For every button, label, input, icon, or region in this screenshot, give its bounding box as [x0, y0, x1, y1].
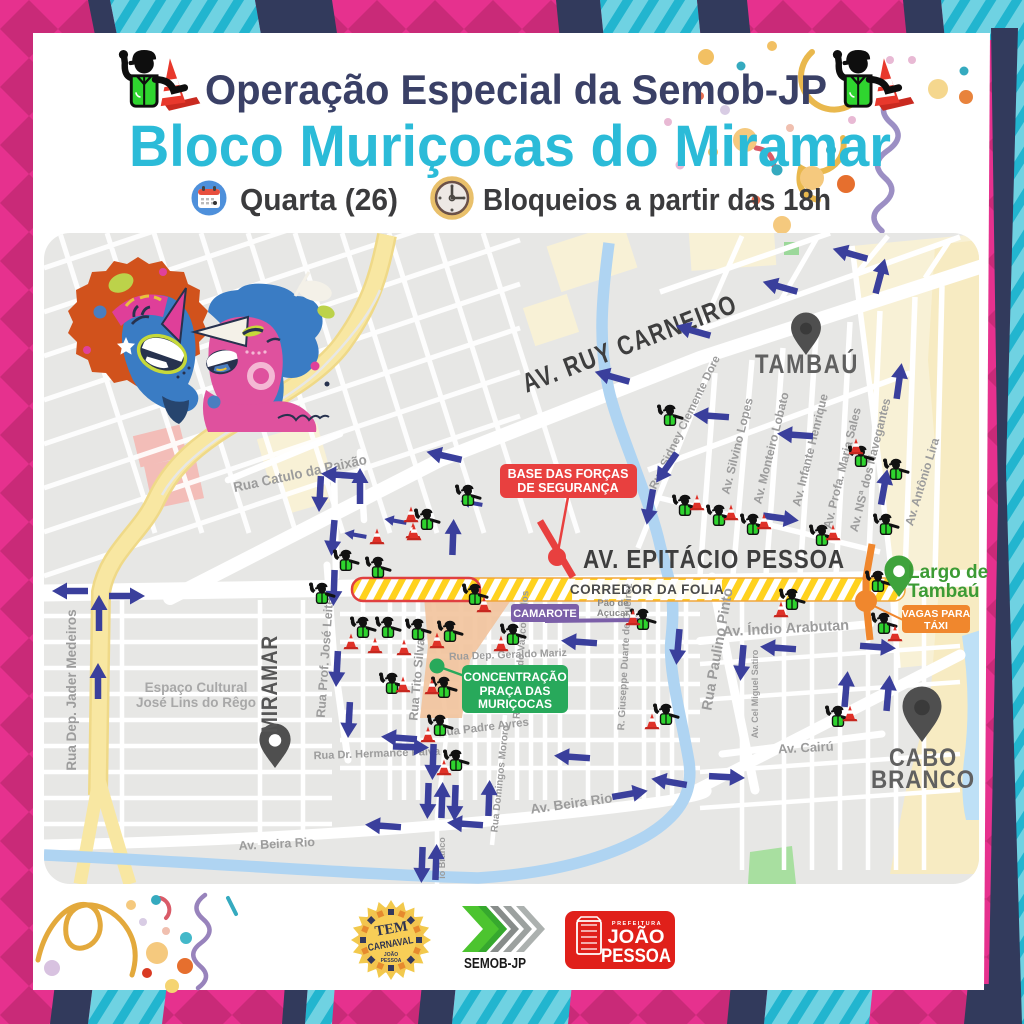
svg-text:SEMOB-JP: SEMOB-JP: [464, 956, 526, 972]
svg-text:MIRAMAR: MIRAMAR: [257, 635, 282, 733]
svg-text:BASE DAS FORÇAS: BASE DAS FORÇAS: [508, 467, 629, 481]
svg-text:BRANCO: BRANCO: [871, 766, 975, 794]
svg-text:TÁXI: TÁXI: [924, 619, 948, 632]
svg-text:Bloqueios a partir das 18h: Bloqueios a partir das 18h: [483, 182, 831, 217]
svg-text:VAGAS PARA: VAGAS PARA: [902, 608, 971, 620]
svg-text:Tambaú: Tambaú: [908, 581, 979, 602]
svg-text:PRAÇA DAS: PRAÇA DAS: [480, 684, 551, 698]
svg-text:CAMAROTE: CAMAROTE: [513, 608, 577, 620]
svg-text:AV. EPITÁCIO PESSOA: AV. EPITÁCIO PESSOA: [583, 544, 845, 574]
svg-text:JOÃO: JOÃO: [384, 951, 398, 958]
svg-text:Bloco Muriçocas do Miramar: Bloco Muriçocas do Miramar: [129, 114, 891, 179]
svg-text:Açucar: Açucar: [597, 608, 630, 619]
svg-text:Av. Cairú: Av. Cairú: [778, 739, 834, 757]
svg-text:PESSOA: PESSOA: [601, 945, 671, 967]
svg-text:PESSOA: PESSOA: [381, 958, 402, 964]
svg-text:Rua Dep. Jader Medeiros: Rua Dep. Jader Medeiros: [64, 609, 79, 770]
svg-text:CONCENTRAÇÃO: CONCENTRAÇÃO: [463, 669, 566, 684]
svg-text:MURIÇOCAS: MURIÇOCAS: [478, 697, 552, 711]
svg-text:Largo de: Largo de: [908, 562, 988, 583]
svg-text:Quarta (26): Quarta (26): [240, 182, 398, 217]
svg-text:CORREDOR DA FOLIA: CORREDOR DA FOLIA: [570, 582, 724, 597]
svg-text:Av. Cel Miguel Satiro: Av. Cel Miguel Satiro: [750, 649, 760, 738]
svg-text:Operação Especial da Semob-JP: Operação Especial da Semob-JP: [205, 66, 827, 113]
svg-text:DE SEGURANÇA: DE SEGURANÇA: [517, 481, 618, 495]
svg-text:TAMBAÚ: TAMBAÚ: [755, 348, 859, 379]
svg-text:Espaço Cultural: Espaço Cultural: [145, 680, 248, 695]
svg-text:José Lins do Rêgo: José Lins do Rêgo: [136, 695, 256, 710]
